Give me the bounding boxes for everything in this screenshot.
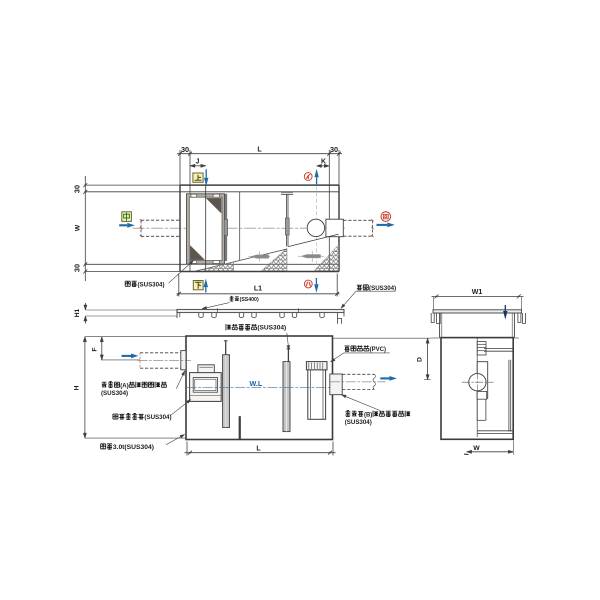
svg-text:W.L: W.L: [250, 379, 263, 388]
svg-text:(SS400): (SS400): [240, 297, 259, 303]
svg-text:W1: W1: [472, 289, 483, 296]
svg-text:(PVC): (PVC): [370, 346, 386, 353]
svg-text:(SUS304): (SUS304): [257, 325, 286, 332]
svg-text:30: 30: [73, 185, 82, 193]
svg-text:K: K: [321, 158, 326, 165]
svg-text:30: 30: [73, 264, 82, 272]
svg-text:30: 30: [330, 145, 338, 154]
svg-text:~: ~: [464, 450, 469, 460]
svg-text:(SUS304): (SUS304): [144, 414, 171, 421]
svg-text:D: D: [417, 357, 424, 362]
svg-text:L: L: [257, 147, 262, 154]
svg-text:(SUS304): (SUS304): [137, 281, 164, 288]
svg-text:F: F: [92, 347, 99, 351]
svg-text:(SUS304): (SUS304): [101, 390, 128, 397]
svg-text:J: J: [196, 158, 200, 165]
svg-text:L: L: [256, 445, 261, 452]
svg-text:H: H: [74, 385, 81, 390]
svg-text:(A): (A): [120, 382, 128, 389]
svg-text:30: 30: [181, 145, 189, 154]
svg-text:W: W: [75, 224, 82, 231]
svg-text:3.0t(SUS304): 3.0t(SUS304): [113, 444, 154, 451]
svg-text:W: W: [473, 445, 480, 452]
svg-text:(B): (B): [364, 411, 372, 418]
svg-text:L1: L1: [254, 286, 262, 293]
svg-text:(SUS304): (SUS304): [369, 285, 396, 292]
svg-text:H1: H1: [74, 308, 81, 317]
svg-text:(SUS304): (SUS304): [345, 419, 372, 426]
